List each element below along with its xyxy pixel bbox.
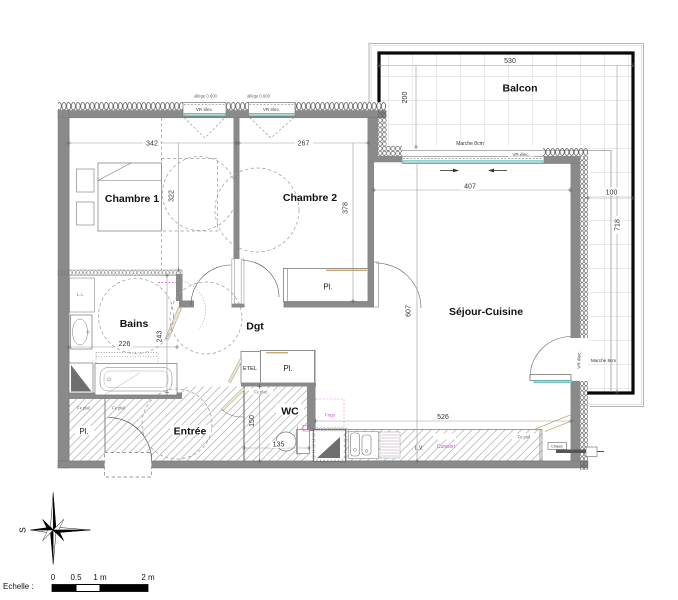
svg-text:Fx plaf.: Fx plaf. [518, 435, 532, 440]
svg-text:Fx plaf.: Fx plaf. [254, 390, 268, 395]
svg-text:Pl.: Pl. [283, 364, 292, 373]
svg-text:Echelle :: Echelle : [3, 582, 34, 591]
svg-text:200: 200 [402, 92, 409, 104]
svg-text:2 m: 2 m [141, 573, 155, 582]
svg-text:0.5: 0.5 [70, 573, 82, 582]
svg-text:342: 342 [146, 141, 158, 148]
svg-text:322: 322 [169, 190, 176, 202]
svg-text:Pl.: Pl. [323, 283, 332, 292]
svg-text:718: 718 [615, 219, 622, 231]
svg-text:530: 530 [504, 58, 516, 65]
svg-text:378: 378 [343, 202, 350, 214]
svg-text:ETEL: ETEL [243, 366, 257, 372]
svg-text:Entrée: Entrée [174, 426, 207, 438]
svg-text:Chambre 2: Chambre 2 [283, 192, 337, 204]
svg-text:allège 0.600: allège 0.600 [247, 94, 270, 99]
svg-text:L.L.: L.L. [77, 292, 85, 297]
svg-text:Frigo: Frigo [325, 413, 336, 418]
svg-text:WC: WC [281, 406, 299, 418]
svg-text:135: 135 [273, 442, 285, 449]
svg-text:Marche 8cm: Marche 8cm [456, 141, 484, 147]
svg-text:243: 243 [157, 331, 164, 343]
svg-text:0: 0 [51, 573, 56, 582]
svg-text:Chaud.: Chaud. [551, 445, 563, 449]
svg-text:Bains: Bains [120, 318, 149, 330]
svg-text:Fx plaf.: Fx plaf. [112, 406, 126, 411]
svg-text:150: 150 [249, 415, 256, 427]
svg-text:1 m: 1 m [93, 573, 107, 582]
svg-text:Séjour-Cuisine: Séjour-Cuisine [449, 306, 523, 318]
svg-text:Cuisson: Cuisson [437, 444, 455, 450]
svg-text:226: 226 [119, 341, 131, 348]
svg-text:607: 607 [406, 305, 413, 317]
svg-text:100: 100 [606, 190, 618, 197]
svg-text:S: S [18, 527, 28, 533]
svg-text:L.V.: L.V. [415, 446, 423, 452]
svg-text:526: 526 [437, 414, 449, 421]
svg-text:Fx plaf.: Fx plaf. [77, 406, 91, 411]
svg-text:Pl.: Pl. [79, 427, 88, 436]
svg-text:Balcon: Balcon [502, 83, 537, 95]
svg-text:VR élec.: VR élec. [196, 107, 213, 112]
svg-text:VR élec.: VR élec. [263, 107, 280, 112]
svg-text:VR élec.: VR élec. [577, 351, 582, 368]
svg-text:407: 407 [464, 184, 476, 191]
svg-text:allège 0.600: allège 0.600 [194, 94, 217, 99]
svg-text:267: 267 [298, 141, 310, 148]
svg-text:VR élec.: VR élec. [512, 152, 529, 157]
svg-text:Dgt: Dgt [246, 321, 264, 333]
svg-text:Chambre 1: Chambre 1 [105, 193, 159, 205]
svg-text:Marche 8cm: Marche 8cm [591, 358, 616, 363]
